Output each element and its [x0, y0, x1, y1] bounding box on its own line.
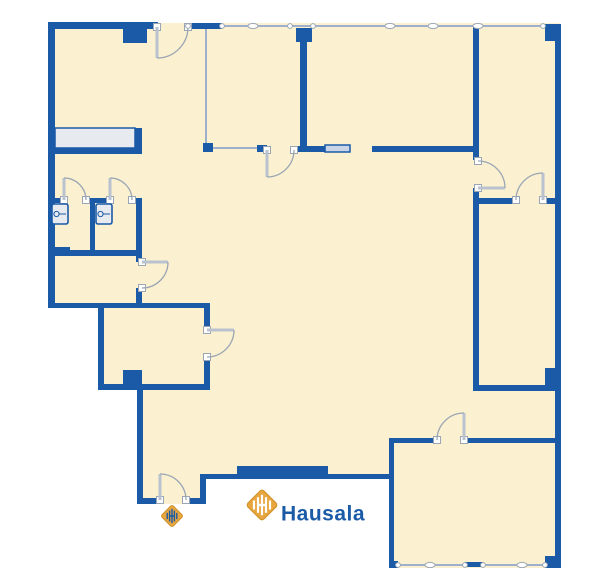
window-marker-icon	[248, 23, 258, 28]
wall-segment	[372, 146, 477, 152]
wall-segment	[300, 28, 307, 152]
wall-joint-dot	[463, 563, 468, 568]
wall-joint-dot	[396, 563, 401, 568]
toilet-icon-detail	[98, 211, 103, 216]
wall-segment	[389, 438, 394, 568]
wall-joint-dot	[288, 24, 293, 29]
wall-segment	[135, 128, 142, 154]
wall-segment	[188, 23, 222, 29]
wall-segment	[123, 29, 147, 43]
wall-segment	[123, 370, 142, 386]
wall-segment	[204, 308, 210, 327]
wall-segment	[48, 22, 55, 308]
window-box	[55, 128, 135, 148]
wall-segment	[237, 466, 328, 479]
wall-segment	[295, 146, 325, 152]
window-box	[325, 145, 350, 152]
wall-segment	[203, 143, 213, 152]
diamond-glyph-crossbar	[258, 504, 267, 506]
wall-segment	[473, 198, 514, 204]
wall-joint-dot	[481, 563, 486, 568]
wall-segment	[48, 303, 210, 308]
wall-joint-dot	[541, 24, 546, 29]
toilet-icon-detail	[54, 211, 59, 216]
wall-joint-dot	[220, 24, 225, 29]
window-marker-icon	[425, 562, 435, 567]
diamond-glyph-bar	[253, 501, 255, 510]
wall-segment	[90, 203, 95, 250]
diamond-glyph-bar	[167, 513, 168, 519]
wall-segment	[137, 388, 143, 504]
floorplan-drawing: Hausala	[0, 0, 600, 588]
wall-joint-dot	[186, 24, 191, 29]
diamond-glyph-bar	[269, 501, 271, 510]
diamond-glyph-crossbar	[169, 515, 174, 517]
wall-segment	[188, 498, 206, 504]
window-marker-icon	[385, 23, 395, 28]
wall-segment	[545, 368, 558, 385]
diamond-glyph-bar	[176, 513, 177, 519]
window-marker-icon	[517, 562, 527, 567]
wall-segment	[98, 384, 210, 390]
window-marker-icon	[428, 23, 438, 28]
wall-segment	[48, 22, 158, 29]
wall-segment	[473, 188, 479, 391]
window-marker-icon	[473, 23, 483, 28]
wall-segment	[555, 24, 561, 568]
floorplan-canvas: Hausala	[0, 0, 600, 588]
wall-segment	[136, 198, 142, 250]
wall-segment	[204, 357, 210, 390]
wall-segment	[98, 308, 104, 390]
wall-segment	[48, 247, 70, 256]
wall-segment	[465, 438, 558, 443]
wall-segment	[478, 385, 561, 391]
logo-text: Hausala	[281, 503, 365, 526]
wall-segment	[473, 27, 479, 160]
wall-joint-dot	[543, 563, 548, 568]
wall-segment	[48, 148, 142, 154]
wall-joint-dot	[311, 24, 316, 29]
wall-segment	[389, 438, 437, 443]
